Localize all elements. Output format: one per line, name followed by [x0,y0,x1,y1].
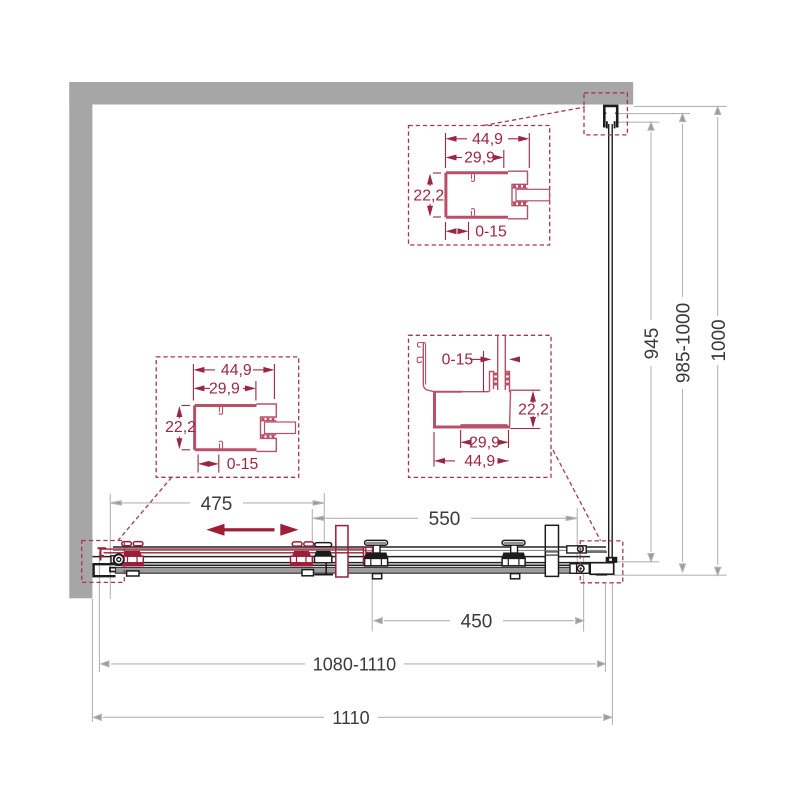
svg-text:0-15: 0-15 [442,352,474,369]
svg-text:44,9: 44,9 [221,362,252,379]
svg-text:0-15: 0-15 [227,456,259,473]
svg-text:44,9: 44,9 [472,131,503,148]
svg-text:0-15: 0-15 [475,224,507,241]
svg-text:29,9: 29,9 [464,150,495,167]
svg-text:450: 450 [461,612,493,633]
svg-text:44,9: 44,9 [464,453,495,470]
svg-text:22,2: 22,2 [518,402,549,419]
svg-text:22,2: 22,2 [165,419,196,436]
svg-text:1080-1110: 1080-1110 [313,655,396,675]
svg-text:550: 550 [429,509,461,530]
svg-text:945: 945 [642,328,663,360]
svg-text:29,9: 29,9 [469,435,500,452]
svg-text:475: 475 [201,494,233,515]
svg-text:1110: 1110 [332,708,369,728]
svg-text:1000: 1000 [709,319,730,361]
svg-text:29,9: 29,9 [209,381,240,398]
svg-text:985-1000: 985-1000 [674,303,695,383]
svg-text:22,2: 22,2 [413,187,444,204]
